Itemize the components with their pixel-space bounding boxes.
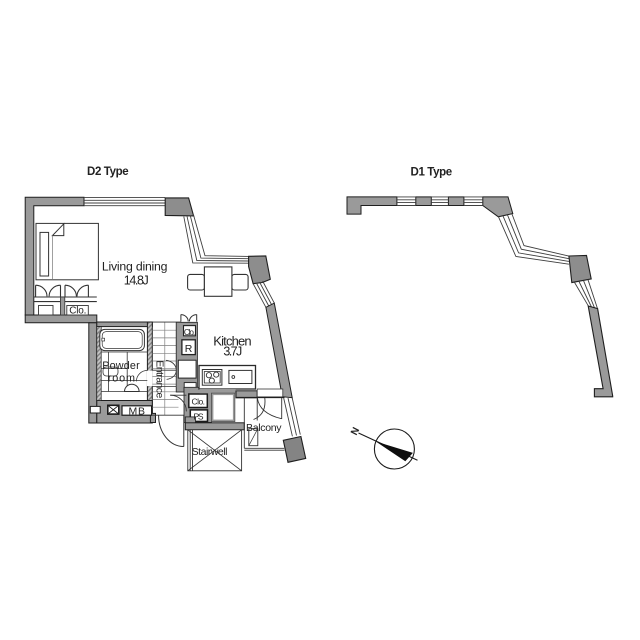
svg-text:14.8J: 14.8J — [124, 274, 149, 288]
svg-text:D2 Type: D2 Type — [87, 166, 129, 178]
svg-text:Clo.: Clo. — [184, 328, 195, 337]
svg-text:Entrance: Entrance — [153, 360, 165, 398]
svg-text:PS: PS — [194, 412, 204, 422]
svg-text:room: room — [108, 372, 135, 384]
svg-text:Stairwell: Stairwell — [192, 446, 228, 458]
svg-text:MB: MB — [129, 405, 146, 417]
svg-text:D1 Type: D1 Type — [411, 167, 453, 179]
svg-text:3.7J: 3.7J — [223, 345, 242, 359]
svg-text:Clo.: Clo. — [69, 305, 86, 316]
svg-text:Living dining: Living dining — [102, 259, 168, 273]
svg-text:Powder: Powder — [102, 360, 140, 372]
svg-text:R: R — [185, 343, 193, 355]
svg-text:Clo.: Clo. — [192, 397, 206, 407]
svg-text:Balcony: Balcony — [246, 422, 282, 434]
